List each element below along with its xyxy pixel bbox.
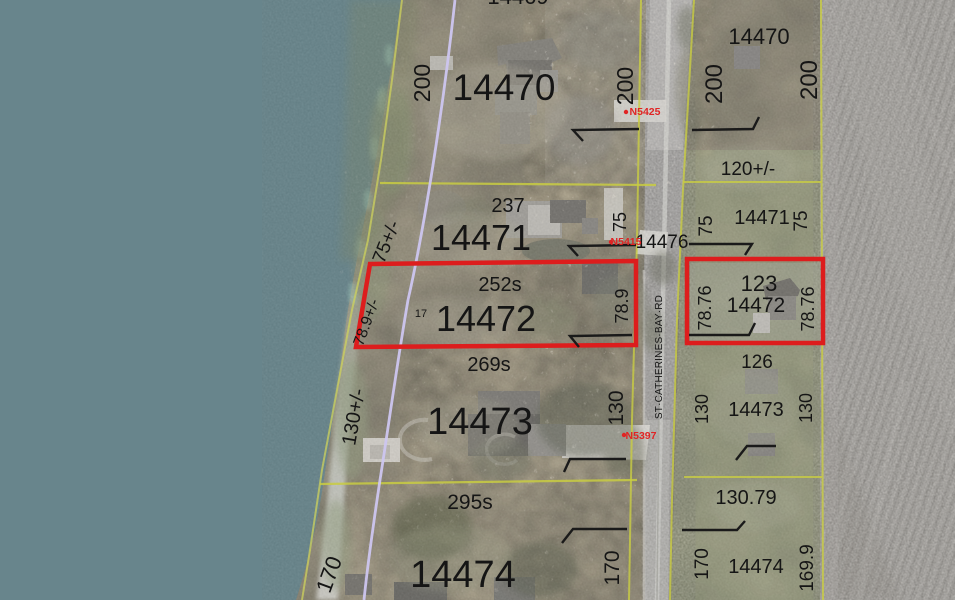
svg-text:14471: 14471 (431, 217, 531, 258)
svg-text:269s: 269s (467, 354, 510, 376)
svg-text:N5425: N5425 (630, 106, 661, 118)
svg-text:75: 75 (610, 212, 630, 232)
svg-text:14470: 14470 (453, 67, 556, 108)
svg-text:17: 17 (415, 308, 427, 320)
svg-text:14474: 14474 (410, 554, 516, 596)
svg-text:14472: 14472 (727, 294, 785, 317)
svg-text:78.9: 78.9 (612, 288, 632, 323)
svg-text:170: 170 (692, 548, 713, 580)
svg-text:78.76: 78.76 (798, 286, 818, 331)
svg-text:170: 170 (601, 550, 624, 585)
svg-text:200: 200 (409, 64, 435, 102)
svg-text:237: 237 (491, 195, 524, 217)
svg-text:N5415: N5415 (611, 236, 642, 248)
svg-text:75: 75 (696, 215, 717, 236)
svg-text:130: 130 (605, 390, 628, 425)
svg-text:200: 200 (701, 64, 728, 104)
svg-text:130.79: 130.79 (715, 487, 776, 509)
svg-text:295s: 295s (447, 491, 493, 514)
svg-text:200: 200 (612, 67, 638, 105)
svg-text:130: 130 (692, 394, 712, 424)
svg-text:75: 75 (791, 210, 812, 231)
svg-text:78.76: 78.76 (695, 285, 715, 330)
svg-text:14471: 14471 (734, 207, 790, 229)
svg-text:N5397: N5397 (626, 430, 657, 442)
svg-text:14470: 14470 (728, 24, 789, 49)
svg-text:14476: 14476 (636, 232, 689, 253)
svg-text:14472: 14472 (436, 298, 536, 339)
svg-text:123: 123 (741, 271, 778, 296)
svg-text:14473: 14473 (427, 401, 533, 443)
svg-text:252s: 252s (478, 274, 521, 296)
svg-text:14473: 14473 (728, 399, 784, 421)
svg-text:14469: 14469 (487, 0, 548, 9)
svg-text:169.9: 169.9 (797, 544, 818, 592)
svg-text:130: 130 (796, 393, 816, 423)
svg-text:200: 200 (796, 60, 823, 100)
svg-text:126: 126 (741, 352, 773, 373)
svg-text:14474: 14474 (728, 556, 784, 578)
svg-text:ST·CATHERINES·BAY·RD: ST·CATHERINES·BAY·RD (654, 295, 665, 419)
svg-text:120+/-: 120+/- (721, 159, 775, 180)
